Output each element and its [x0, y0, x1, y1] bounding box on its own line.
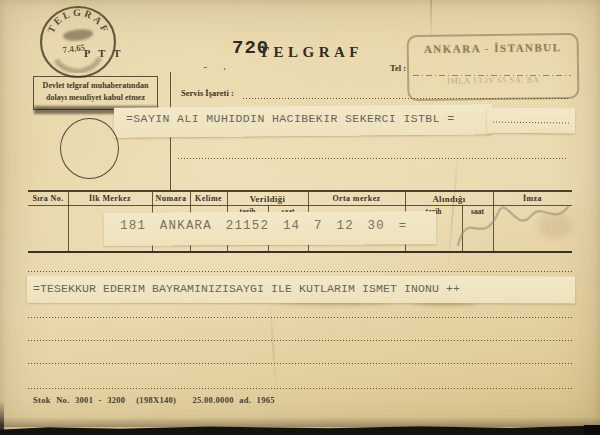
recipient-line: =SAYIN ALI MUHIDDIN HACIBEKIR SEKERCI IS…: [126, 112, 455, 125]
typed-marks: - .: [202, 61, 231, 73]
ruled-line-3: [28, 363, 572, 364]
entry-strip-text: 181 ANKARA 21152 14 7 12 30 =: [120, 219, 407, 233]
col-header-ilk-merkez: İlk Merkez: [68, 194, 152, 203]
pencil-signature-squiggle: [440, 193, 580, 255]
col-header-sira: Sıra No.: [28, 194, 68, 203]
col-header-kelime: Kelime: [190, 194, 227, 203]
col-header-verildigi: Verildiği: [227, 194, 308, 204]
tel-label: Tel :: [390, 63, 406, 73]
photo-corner-right: [584, 425, 600, 435]
photo-bottom-shadow: [0, 417, 600, 427]
ruled-line-2: [28, 340, 572, 341]
route-stamp-line1: ANKARA - İSTANBUL: [409, 41, 577, 55]
route-stamp-line2: İMLA 13 IV 65 SA. BA: [409, 74, 577, 86]
recipient-tape-dots: [493, 122, 569, 124]
seal-circle: [60, 118, 119, 179]
postmark-bottom-smudge: [56, 58, 100, 71]
ruled-line-4: [28, 388, 574, 389]
telegram-photo: TELGRAF 7.4.65 P T T Devlet telgraf muha…: [0, 0, 600, 435]
disclaimer-box: Devlet telgraf muhaberatından dolayı mes…: [33, 76, 158, 110]
postmark-stamp: TELGRAF 7.4.65: [36, 2, 126, 86]
recipient-tape-end: [487, 108, 575, 134]
col-header-numara: Numara: [152, 194, 190, 203]
route-stamp: ANKARA - İSTANBUL İMLA 13 IV 65 SA. BA: [407, 33, 580, 101]
footer-stock-text: Stok No. 3001 - 3200 (198X140) 25.00.000…: [33, 395, 275, 405]
ptt-label: P T T: [84, 48, 124, 59]
servis-label: Servis İşareti :: [181, 88, 234, 98]
col-header-orta-merkez: Orta merkez: [308, 194, 405, 203]
postmark-date: 7.4.65: [62, 42, 86, 55]
message-top-dotted-line: [28, 271, 572, 272]
message-text: =TESEKKUR EDERIM BAYRAMINIZISAYGI ILE KU…: [33, 282, 460, 295]
form-title: TELGRAF: [259, 44, 363, 61]
ruled-line-1: [28, 317, 572, 318]
disclaimer-line1: Devlet telgraf muhaberatından: [34, 79, 157, 92]
disclaimer-line2: dolayı mesuliyet kabul etmez: [34, 92, 157, 104]
recipient-dotted-line: [178, 158, 568, 159]
postmark-smudge: [63, 28, 94, 42]
photo-edge-left: [0, 401, 4, 435]
servis-dotted-line: [243, 98, 568, 99]
